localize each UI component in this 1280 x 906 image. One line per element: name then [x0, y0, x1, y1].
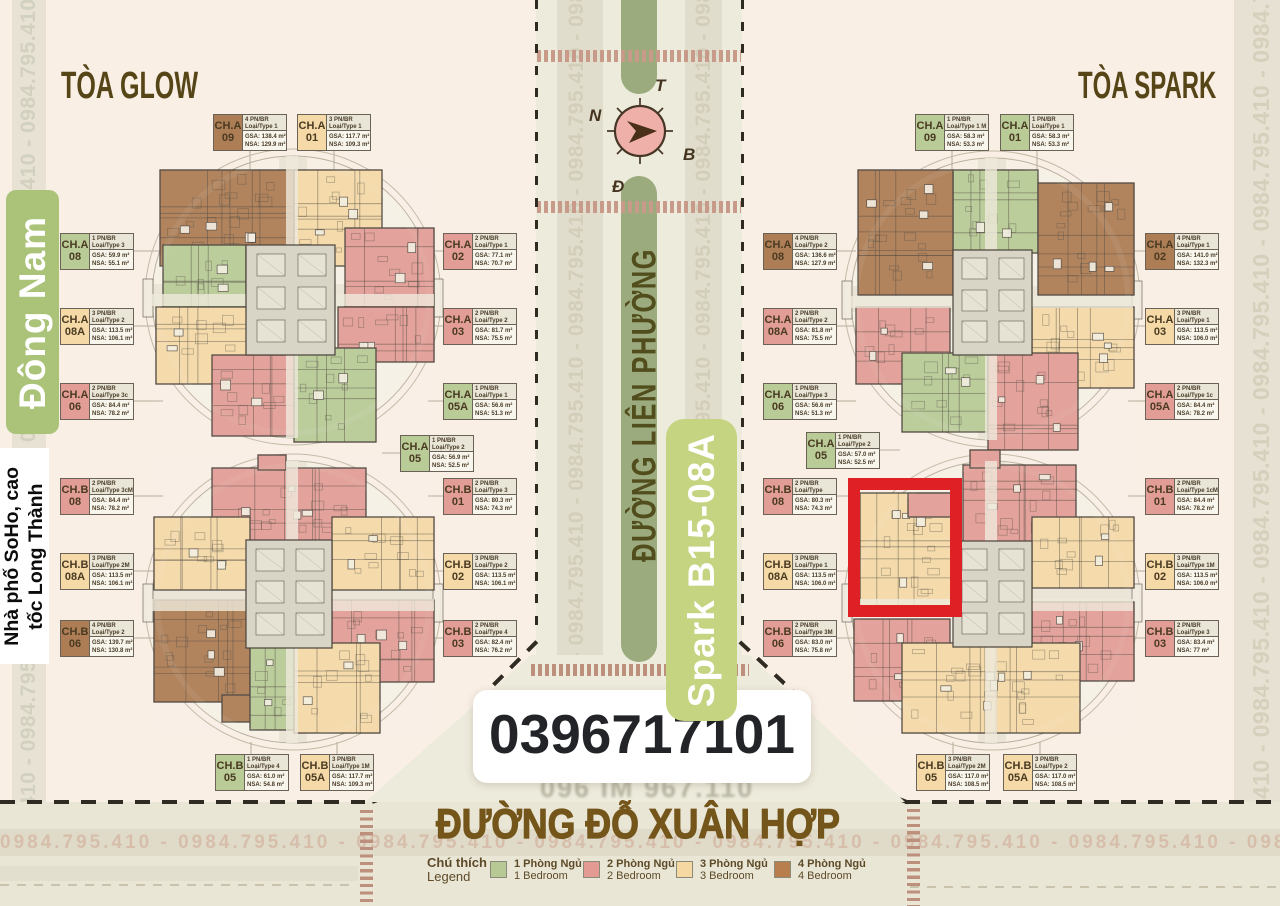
svg-text:ĐƯỜNG LIÊN PHƯỜNG: ĐƯỜNG LIÊN PHƯỜNG: [625, 248, 663, 562]
